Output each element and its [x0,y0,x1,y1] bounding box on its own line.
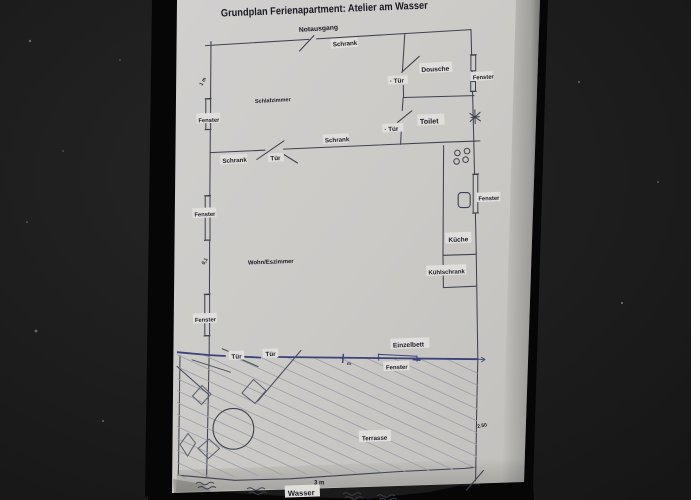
svg-text:Fenster: Fenster [478,196,500,203]
svg-text:3 m: 3 m [314,481,324,487]
svg-text:Küche: Küche [448,236,468,244]
svg-text:Fenster: Fenster [195,317,217,324]
svg-text:Fenster: Fenster [386,365,409,372]
svg-text:Toilet: Toilet [420,116,440,126]
svg-text:Einzelbett: Einzelbett [393,341,425,349]
svg-text:m: m [347,361,351,366]
svg-text:Fenster: Fenster [194,212,216,219]
svg-text:Fenster: Fenster [198,118,220,125]
svg-text:Tür: Tür [231,353,242,360]
svg-text:Wasser: Wasser [288,488,315,498]
svg-text:Terrasse: Terrasse [362,435,388,443]
svg-text:Tür: Tür [265,351,276,358]
svg-text:Tür: Tür [270,155,281,163]
svg-text:· Tür: · Tür [390,77,405,85]
svg-text:Fenster: Fenster [473,74,495,81]
svg-text:Schrank: Schrank [325,136,350,144]
svg-text:Schrank: Schrank [222,157,247,165]
svg-text:Dousche: Dousche [421,66,450,74]
svg-text:· Tür: · Tür [384,126,399,134]
